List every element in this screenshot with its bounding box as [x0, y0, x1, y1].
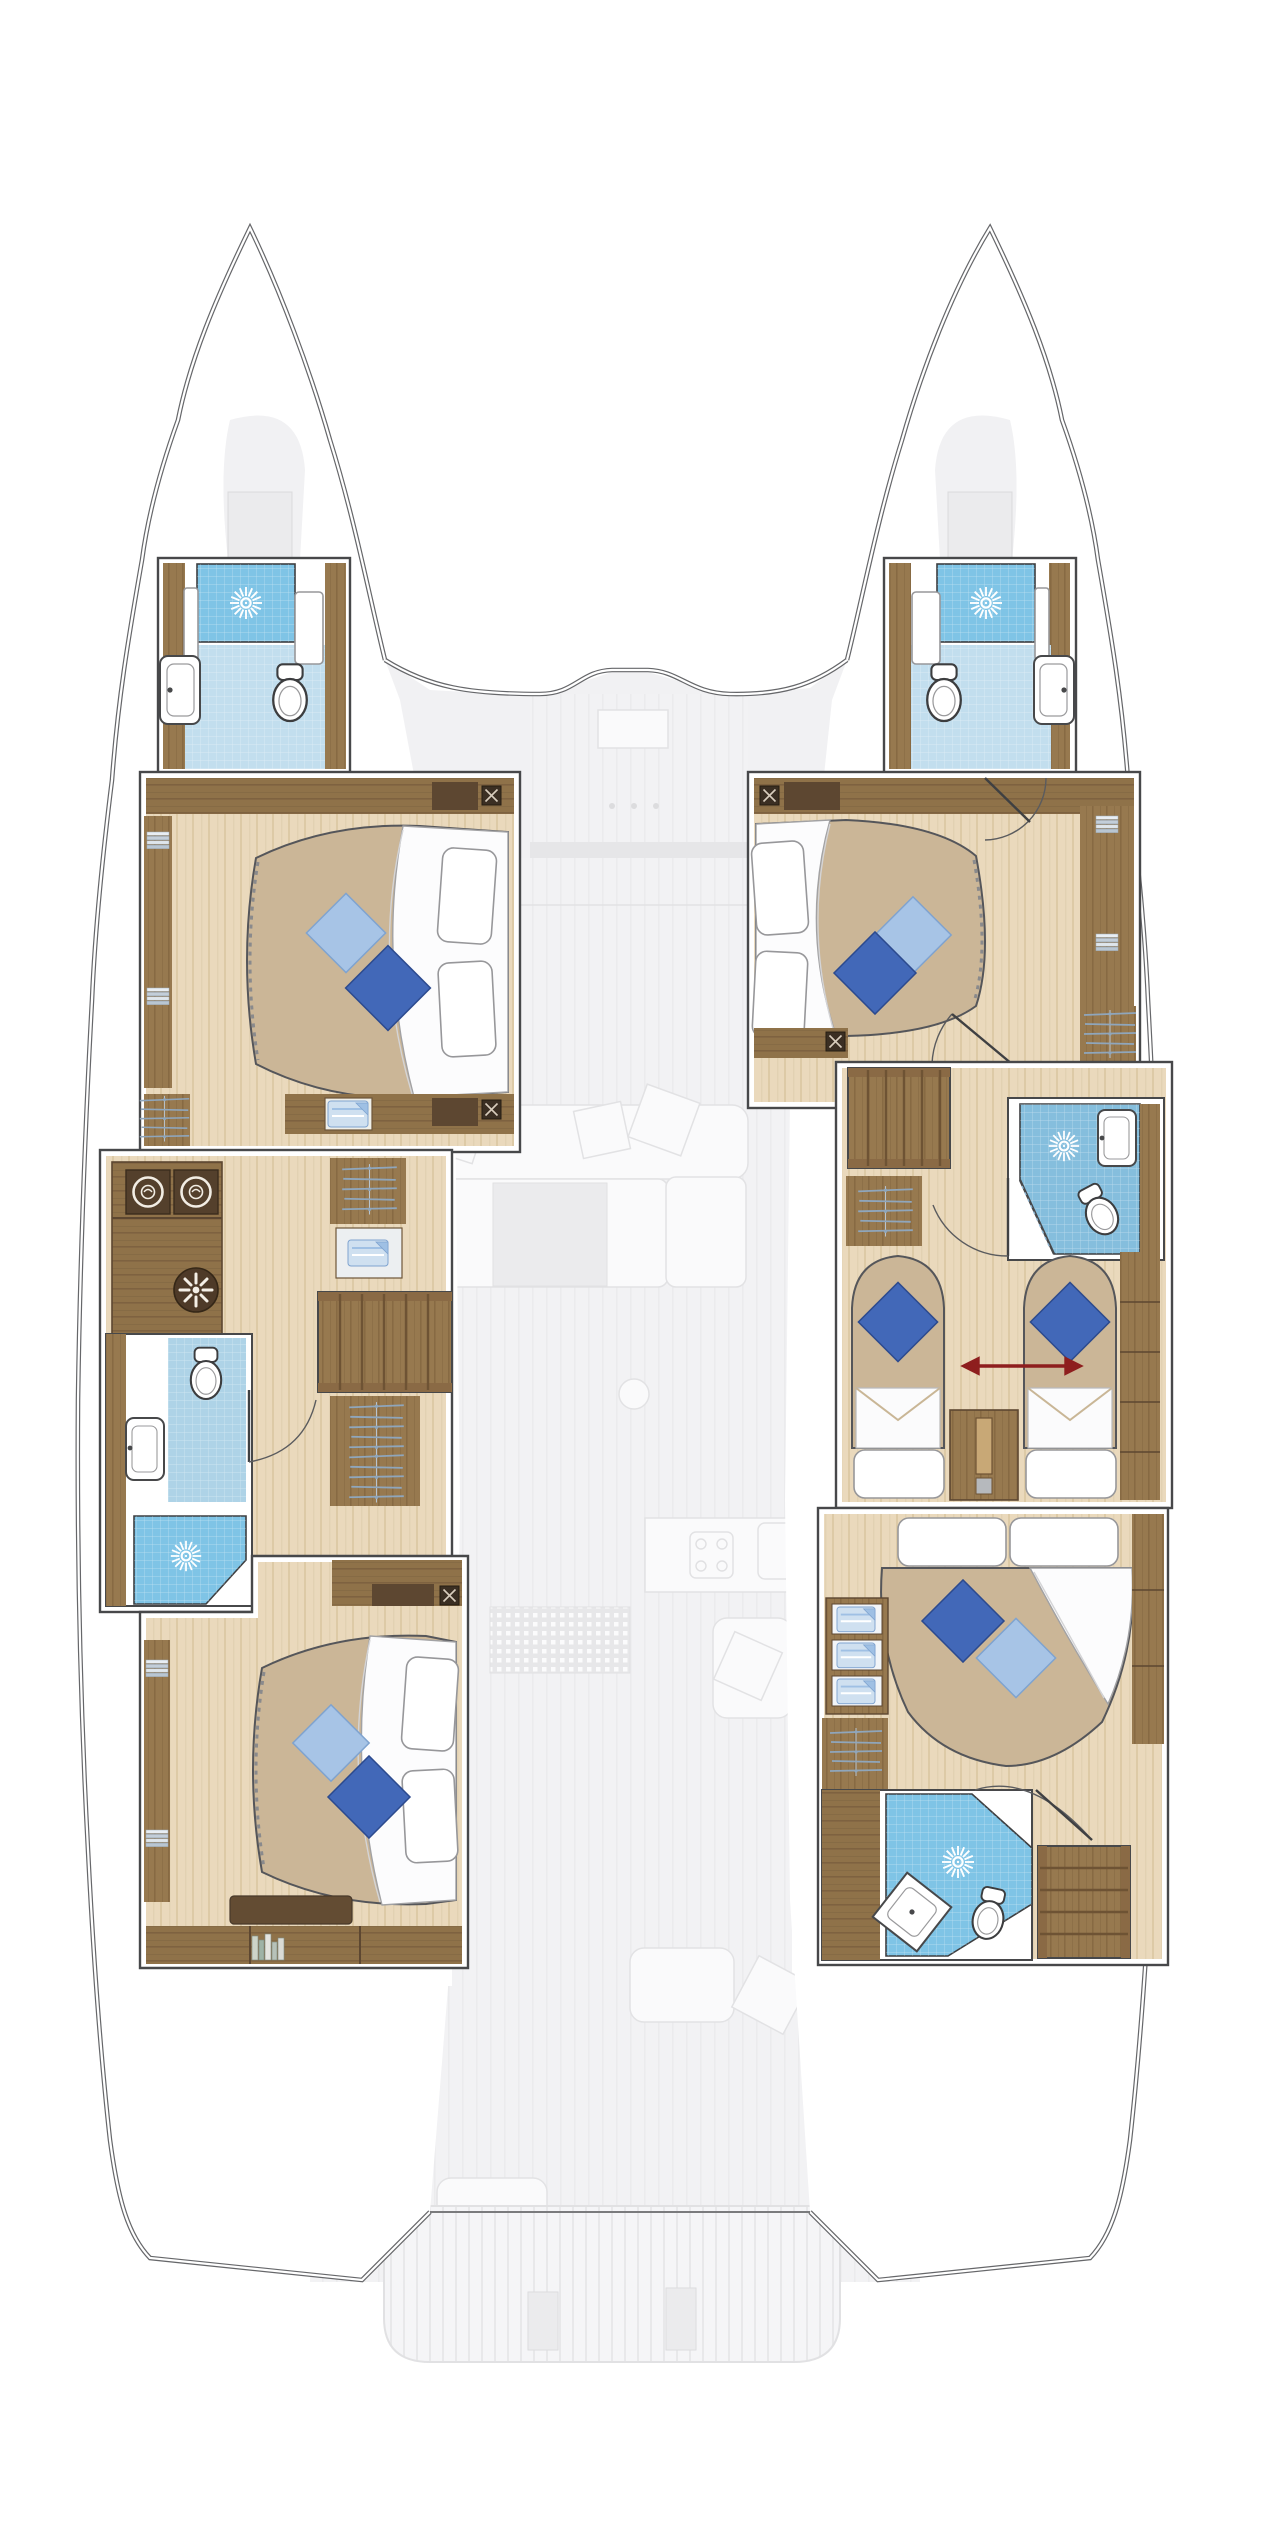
- speaker-grille-icon: [760, 786, 779, 805]
- washer-icon: [126, 1170, 170, 1214]
- pillow: [1026, 1450, 1116, 1498]
- pillow: [898, 1518, 1006, 1566]
- single-bed: [852, 1256, 944, 1498]
- towel-stack-icon: [348, 1240, 388, 1266]
- pillow: [751, 840, 809, 935]
- shower-ledge: [184, 588, 198, 660]
- shower-head-icon: [171, 1541, 201, 1571]
- speaker-grille-icon: [440, 1586, 459, 1605]
- nightstand: [432, 1098, 478, 1126]
- nightstand: [432, 782, 478, 810]
- salon-stool: [619, 1379, 649, 1409]
- speaker-grille-icon: [826, 1032, 845, 1051]
- shower-head-icon: [230, 587, 262, 619]
- bench: [230, 1896, 352, 1924]
- nightstand: [784, 782, 840, 810]
- galley-floor-mat: [490, 1607, 630, 1673]
- starboard-mid-zone: [836, 1062, 1172, 1508]
- starboard-companionway-stairs: [848, 1068, 950, 1168]
- pillow: [437, 847, 497, 945]
- towel-stack-icon: [328, 1101, 368, 1127]
- side-lockers: [144, 1640, 170, 1902]
- side-lockers: [144, 816, 172, 1088]
- books-icon: [252, 1934, 284, 1960]
- port-aft-cabin: [140, 1556, 468, 1968]
- floor-plan-canvas: [0, 0, 1280, 2525]
- toilet-icon: [927, 664, 961, 721]
- towel-stack-icon: [837, 1679, 875, 1704]
- dryer-icon: [174, 1170, 218, 1214]
- extractor-fan-icon: [174, 1268, 218, 1312]
- double-bed: [751, 820, 985, 1039]
- shower-head-icon: [942, 1846, 974, 1878]
- pillow: [402, 1769, 459, 1864]
- shower-head-icon: [970, 587, 1002, 619]
- single-bed: [1024, 1256, 1116, 1498]
- toilet-icon: [191, 1348, 221, 1399]
- wardrobe: [330, 1396, 420, 1506]
- davit: [528, 2292, 558, 2350]
- cabinet: [325, 563, 346, 769]
- towel-stack-icon: [837, 1607, 875, 1632]
- drawer: [372, 1584, 434, 1606]
- shower-ledge: [295, 592, 323, 664]
- starboard-aft-stairs: [1038, 1846, 1130, 1958]
- side-cabinet: [1132, 1514, 1164, 1744]
- bookshelf: [146, 1926, 462, 1964]
- shower-head-icon: [1049, 1131, 1079, 1161]
- nav-seat: [713, 1618, 792, 1718]
- pillow: [401, 1656, 459, 1751]
- speaker-grille-icon: [482, 1100, 501, 1119]
- toilet-icon: [273, 664, 307, 721]
- sink: [126, 1418, 164, 1480]
- foredeck-hatch: [598, 710, 668, 748]
- pillow: [1010, 1518, 1118, 1566]
- sink: [1098, 1110, 1136, 1166]
- catamaran-floor-plan: [0, 0, 1280, 2525]
- side-shelves: [1080, 806, 1134, 1006]
- port-companionway-stairs: [318, 1292, 452, 1392]
- port-mid-zone: [100, 1150, 452, 1612]
- side-cabinet: [1120, 1252, 1160, 1500]
- starboard-forward-cabin: [748, 772, 1140, 1108]
- foot-cabinets: [285, 1094, 514, 1134]
- wardrobe: [144, 1094, 190, 1146]
- pillow: [752, 951, 808, 1040]
- sink: [160, 656, 200, 724]
- starboard-aft-cabin: [818, 1508, 1168, 1965]
- port-utility-area: [112, 1162, 222, 1336]
- davit: [666, 2288, 696, 2350]
- pillow: [438, 961, 497, 1058]
- swim-platform: [384, 2206, 840, 2362]
- linen-lockers: [826, 1598, 888, 1714]
- double-bed: [247, 826, 508, 1099]
- speaker-grille-icon: [482, 786, 501, 805]
- double-bed: [253, 1636, 459, 1905]
- towel-stack-icon: [837, 1643, 875, 1668]
- sink: [1034, 656, 1074, 724]
- pillow: [854, 1450, 944, 1498]
- wardrobe: [822, 1718, 888, 1790]
- salon-table: [493, 1183, 607, 1286]
- console-shade: [530, 842, 748, 858]
